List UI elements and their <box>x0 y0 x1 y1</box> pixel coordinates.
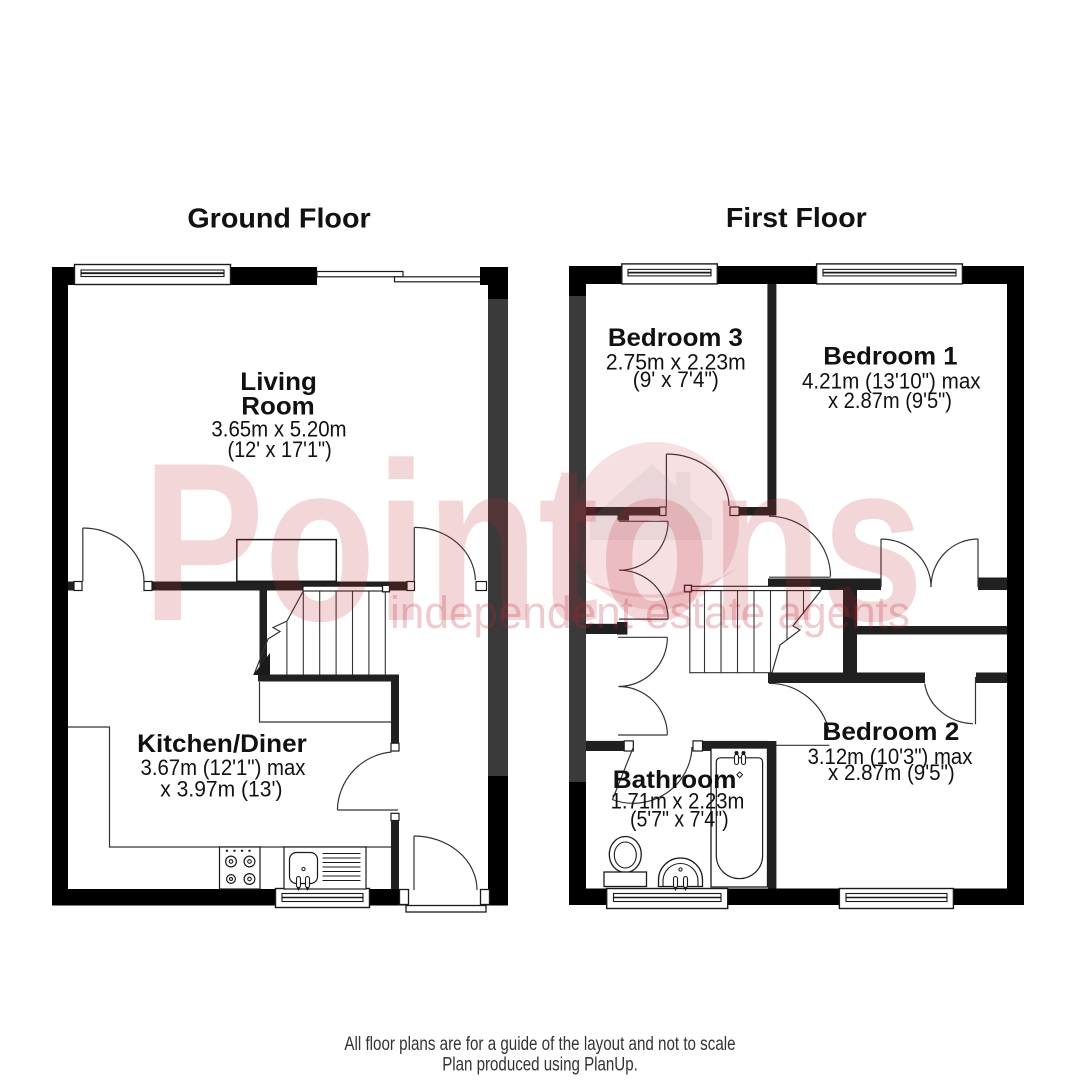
svg-text:First Floor: First Floor <box>726 202 867 233</box>
svg-text:Bedroom 3: Bedroom 3 <box>608 324 743 352</box>
svg-text:x 2.87m (9'5"): x 2.87m (9'5") <box>828 760 955 785</box>
svg-text:Kitchen/Diner: Kitchen/Diner <box>137 730 307 758</box>
svg-text:Bedroom 1: Bedroom 1 <box>823 342 957 370</box>
svg-text:All floor plans are for a guid: All floor plans are for a guide of the l… <box>344 1033 735 1055</box>
svg-text:(12' x 17'1"): (12' x 17'1") <box>227 437 331 462</box>
svg-text:(9' x 7'4"): (9' x 7'4") <box>633 367 719 392</box>
svg-text:(5'7" x 7'4"): (5'7" x 7'4") <box>630 806 729 831</box>
svg-text:Ground Floor: Ground Floor <box>187 203 370 234</box>
svg-text:Bedroom 2: Bedroom 2 <box>822 718 959 746</box>
svg-text:independent estate agents: independent estate agents <box>390 587 910 638</box>
svg-text:x 3.97m (13'): x 3.97m (13') <box>160 776 282 801</box>
svg-text:Plan produced using PlanUp.: Plan produced using PlanUp. <box>442 1054 638 1076</box>
svg-text:x 2.87m (9'5"): x 2.87m (9'5") <box>828 388 952 413</box>
